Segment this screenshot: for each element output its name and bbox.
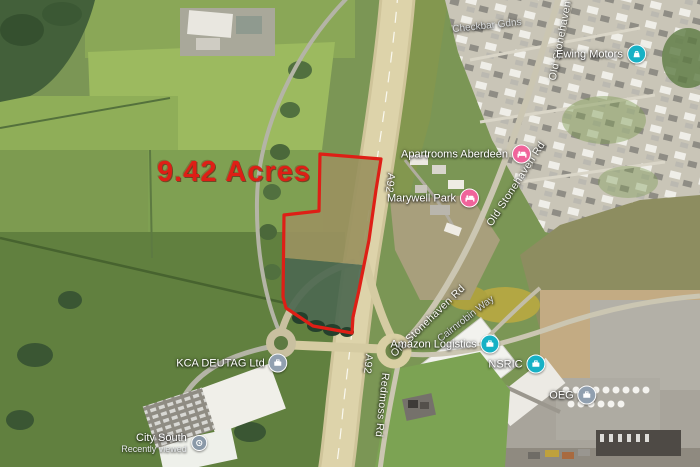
poi-label: NSRIC	[488, 358, 522, 370]
car-dealer-icon[interactable]	[627, 45, 646, 64]
poi-subtitle: Recently viewed	[121, 444, 187, 454]
business-icon[interactable]	[578, 386, 597, 405]
poi-label: Amazon Logistics	[390, 338, 476, 350]
poi-ewing-motors[interactable]: Ewing Motors	[556, 45, 646, 64]
business-icon[interactable]	[527, 355, 546, 374]
poi-city-south[interactable]: City South Recently viewed	[121, 432, 207, 454]
poi-label: Ewing Motors	[556, 48, 623, 60]
poi-nsric[interactable]: NSRIC	[488, 355, 545, 374]
poi-apartrooms-aberdeen[interactable]: Apartrooms Aberdeen	[401, 145, 531, 164]
poi-kca-deutag[interactable]: KCA DEUTAG Ltd	[176, 354, 287, 373]
poi-label: KCA DEUTAG Ltd	[176, 357, 264, 369]
poi-marywell-park[interactable]: Marywell Park	[387, 189, 479, 208]
acreage-label: 9.42 Acres	[157, 156, 311, 189]
poi-label: Marywell Park	[387, 192, 456, 204]
west-roundabout	[270, 332, 292, 354]
recent-icon[interactable]	[191, 435, 207, 451]
poi-amazon-logistics[interactable]: Amazon Logistics	[390, 335, 499, 354]
poi-oeg[interactable]: OEG	[549, 386, 596, 405]
road-label-a92-south: A92	[361, 353, 375, 374]
business-icon[interactable]	[481, 335, 500, 354]
poi-label: City South	[136, 432, 187, 444]
lodging-icon[interactable]	[512, 145, 531, 164]
business-icon[interactable]	[269, 354, 288, 373]
satellite-map[interactable]: 9.42 Acres Checkbar Gdns Old Stonehaven …	[0, 0, 700, 467]
poi-label: Apartrooms Aberdeen	[401, 148, 508, 160]
lodging-icon[interactable]	[460, 189, 479, 208]
poi-label: OEG	[549, 389, 573, 401]
